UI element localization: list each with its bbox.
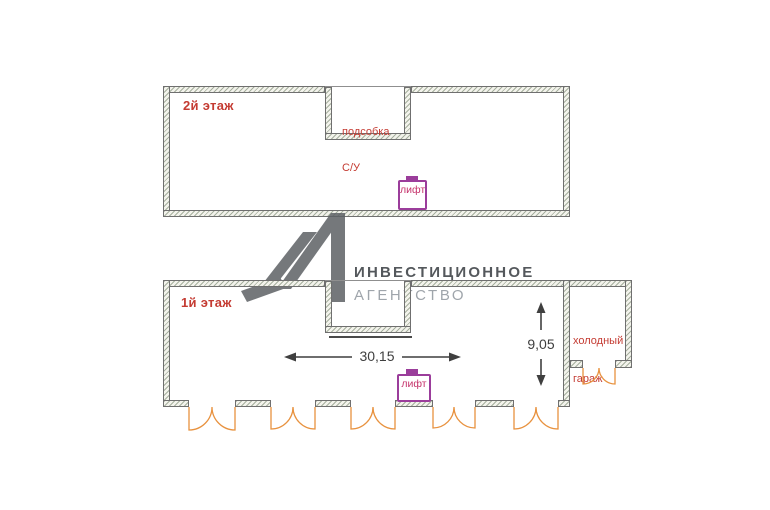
door-swing [271,407,315,429]
lift-box: лифт [397,374,431,402]
wall-segment [411,86,570,93]
wall-segment [411,280,632,287]
utility-room-label: подсобка С/У [342,102,389,198]
logo-mark-stem [331,213,345,302]
lift-box: лифт [398,180,427,210]
annotations-overlay [0,0,770,510]
wall-segment [163,280,170,407]
utility-room-label-line2: С/У [342,162,389,174]
logo-mark-flag [277,213,345,289]
garage-label-line1: холодный [573,335,623,348]
arrow-left-icon [284,353,296,362]
floor1-lift-label: лифт [401,378,426,390]
wall-segment [235,400,271,407]
arrow-down-icon [537,375,546,386]
niche-opening-line [329,336,412,338]
logo-mark [0,0,770,510]
wall-segment [563,86,570,217]
wall-segment [163,86,170,217]
floor1-lift: лифт [397,369,431,402]
floor2-label: 2й этаж [183,98,234,113]
arrow-up-icon [537,302,546,313]
wall-segment [163,280,325,287]
wall-segment [163,400,189,407]
wall-segment [563,280,570,407]
garage-label-line2: гараж [573,373,623,386]
wall-segment [315,400,351,407]
wall-segment [163,86,325,93]
niche-top-edge [325,86,411,87]
wall-segment [558,400,570,407]
wall-segment [475,400,514,407]
height-dimension-value: 9,05 [519,336,563,352]
garage-wall [625,280,632,368]
width-dimension-value: 30,15 [352,348,402,364]
garage-label: холодный гараж [573,310,623,410]
logo-mark-left-stroke [264,232,317,282]
door-swing [351,407,395,429]
arrow-right-icon [449,353,461,362]
door-swing [189,407,235,430]
niche-top-edge [325,280,411,281]
floor2-lift-label: лифт [400,184,425,196]
floor2-lift: лифт [398,176,427,210]
door-swing [433,407,475,428]
door-swing [514,407,558,429]
utility-room-label-line1: подсобка [342,126,389,138]
niche-wall [325,326,411,333]
floor1-label: 1й этаж [181,295,232,310]
floor-plan-canvas: 2й этаж подсобка С/У лифт ИНВЕСТИЦИОННОЕ… [0,0,770,510]
logo-text-line1: ИНВЕСТИЦИОННОЕ [354,264,534,281]
wall-segment [163,210,570,217]
